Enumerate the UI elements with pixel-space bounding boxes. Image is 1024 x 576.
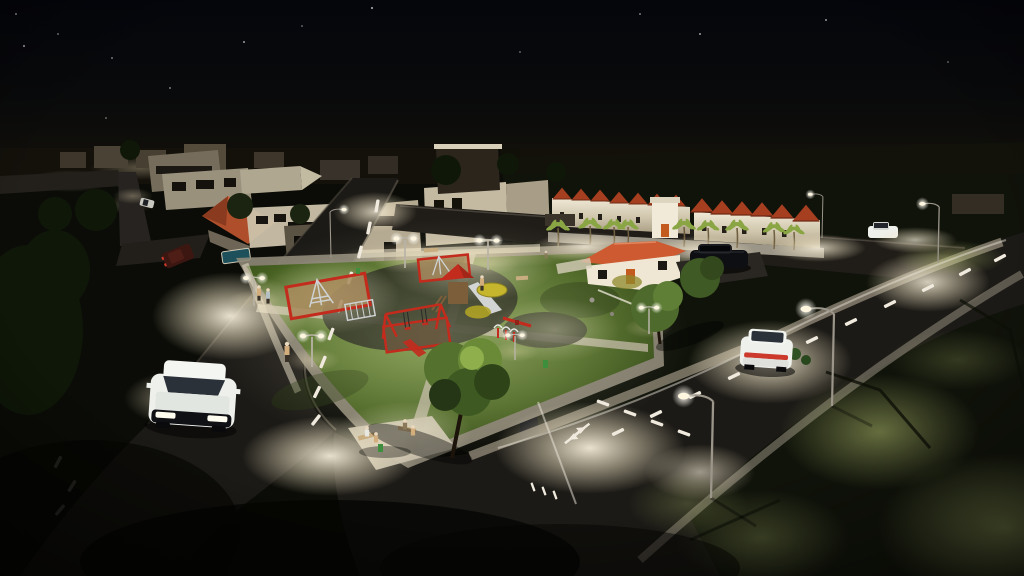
vignette-overlay	[0, 0, 1024, 576]
scene-svg	[0, 0, 1024, 576]
night-render-viewport	[0, 0, 1024, 576]
vignette	[0, 0, 1024, 576]
